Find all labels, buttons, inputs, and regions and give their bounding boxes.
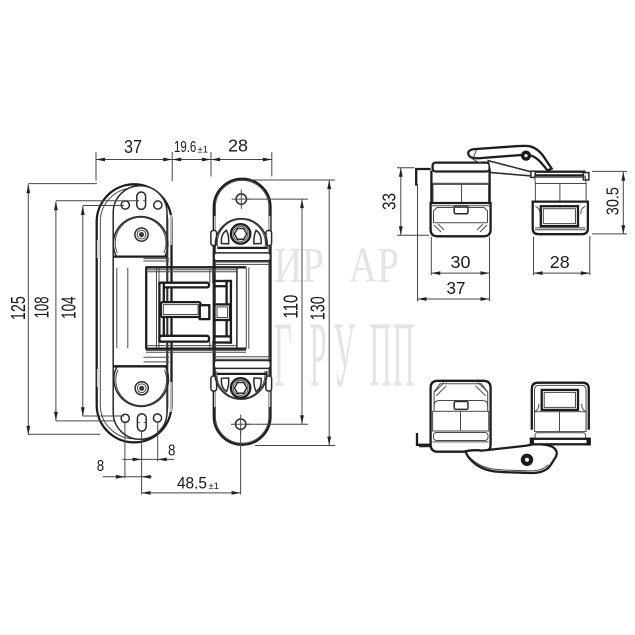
- svg-text:108: 108: [30, 297, 53, 319]
- svg-text:30.5: 30.5: [603, 187, 623, 215]
- svg-text:48.5: 48.5: [177, 474, 207, 493]
- svg-text:П: П: [393, 302, 415, 405]
- svg-text:У: У: [333, 302, 355, 405]
- svg-text:±1: ±1: [198, 145, 209, 156]
- svg-text:37: 37: [447, 278, 466, 298]
- svg-text:104: 104: [57, 297, 80, 319]
- svg-text:П: П: [370, 302, 392, 405]
- svg-text:33: 33: [380, 193, 400, 210]
- svg-text:28: 28: [228, 136, 248, 156]
- svg-text:АР: АР: [349, 237, 399, 293]
- svg-text:19.6: 19.6: [174, 139, 196, 156]
- svg-text:8: 8: [97, 458, 104, 475]
- svg-text:110: 110: [280, 295, 303, 319]
- svg-text:±1: ±1: [209, 481, 220, 492]
- svg-text:37: 37: [124, 137, 142, 157]
- svg-text:125: 125: [7, 296, 30, 320]
- svg-text:8: 8: [168, 443, 175, 460]
- svg-text:30: 30: [451, 252, 471, 272]
- svg-text:ИР: ИР: [274, 237, 324, 293]
- svg-text:28: 28: [550, 252, 570, 272]
- svg-text:130: 130: [307, 296, 330, 320]
